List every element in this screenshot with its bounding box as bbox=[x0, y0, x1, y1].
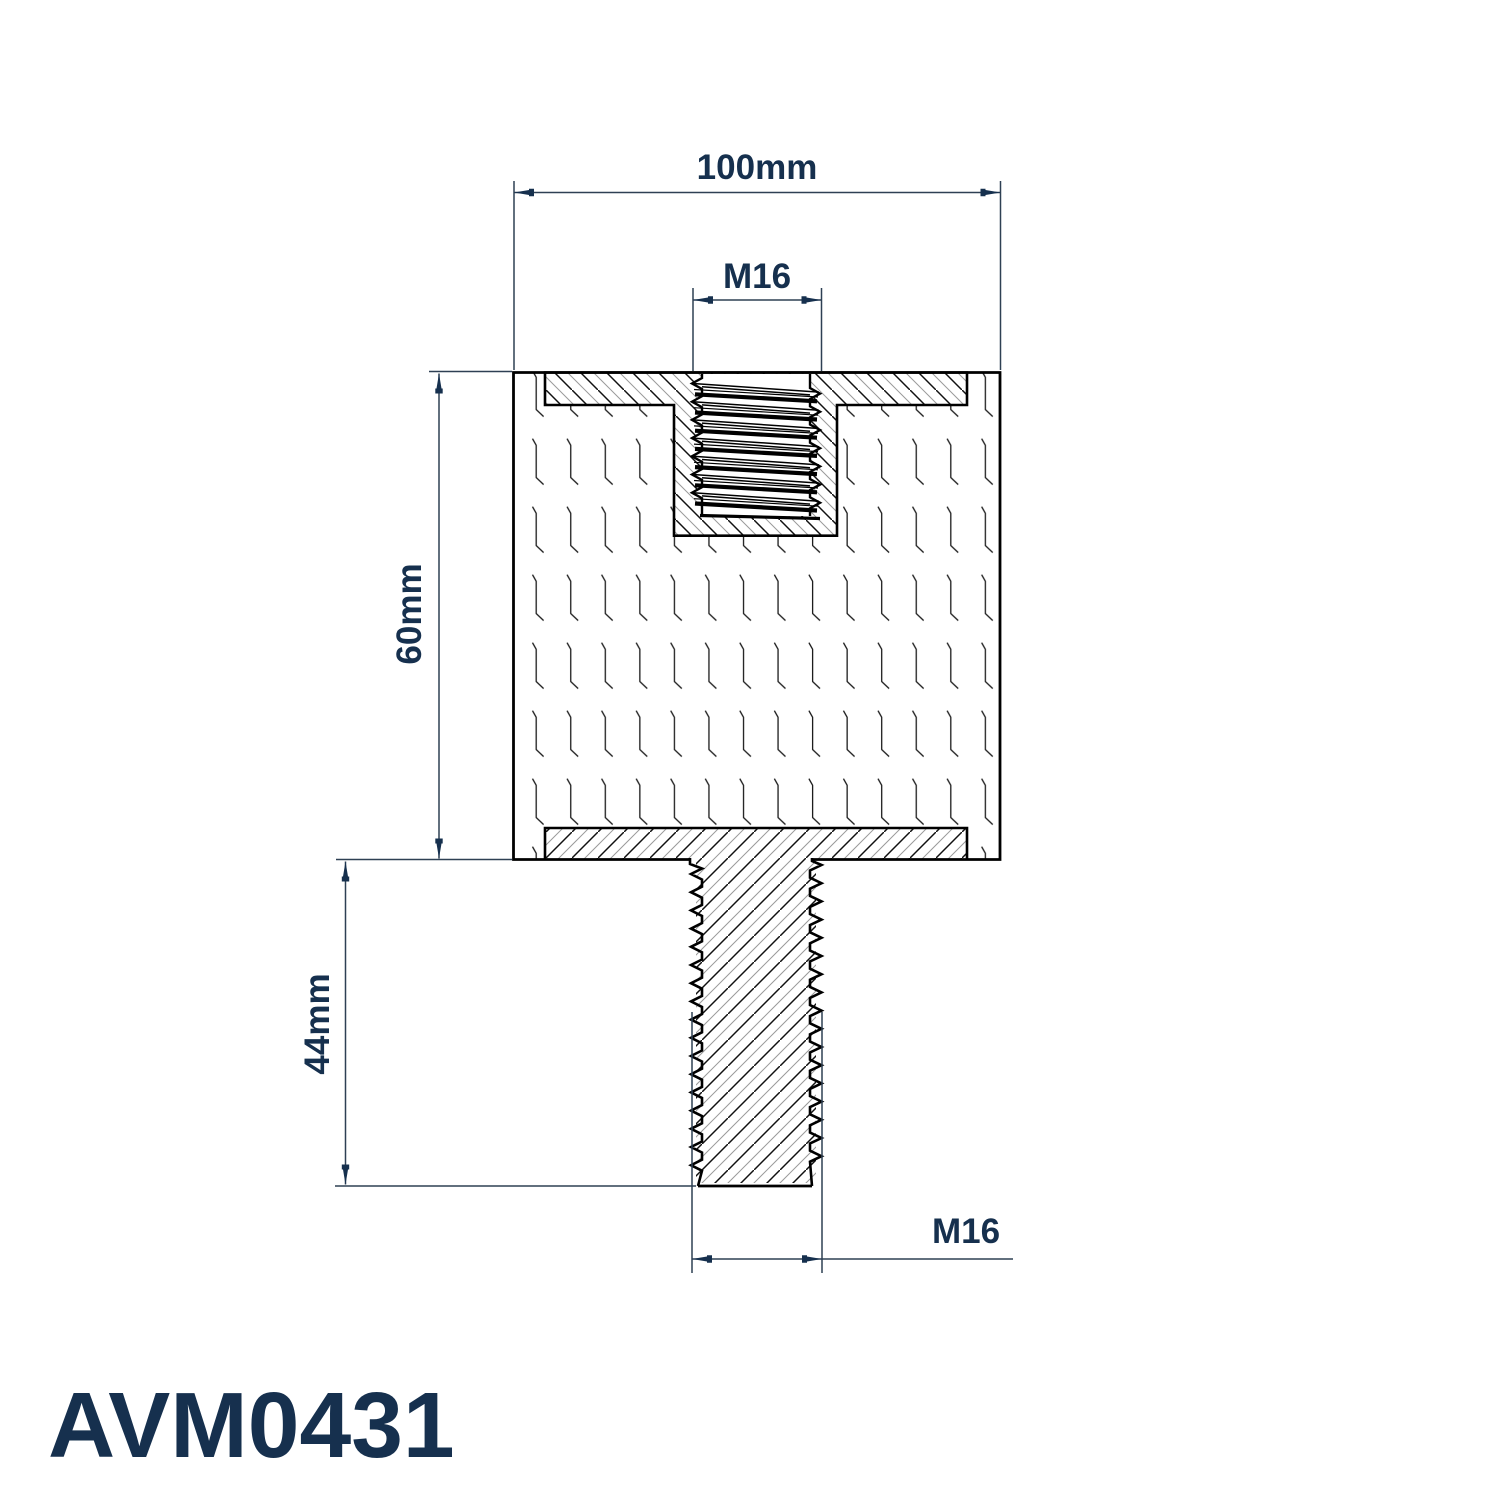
svg-text:M16: M16 bbox=[723, 257, 791, 296]
svg-text:100mm: 100mm bbox=[697, 148, 818, 187]
svg-text:M16: M16 bbox=[932, 1212, 1000, 1251]
svg-text:60mm: 60mm bbox=[390, 563, 429, 664]
svg-text:44mm: 44mm bbox=[298, 973, 337, 1074]
svg-text:AVM0431: AVM0431 bbox=[48, 1373, 455, 1477]
